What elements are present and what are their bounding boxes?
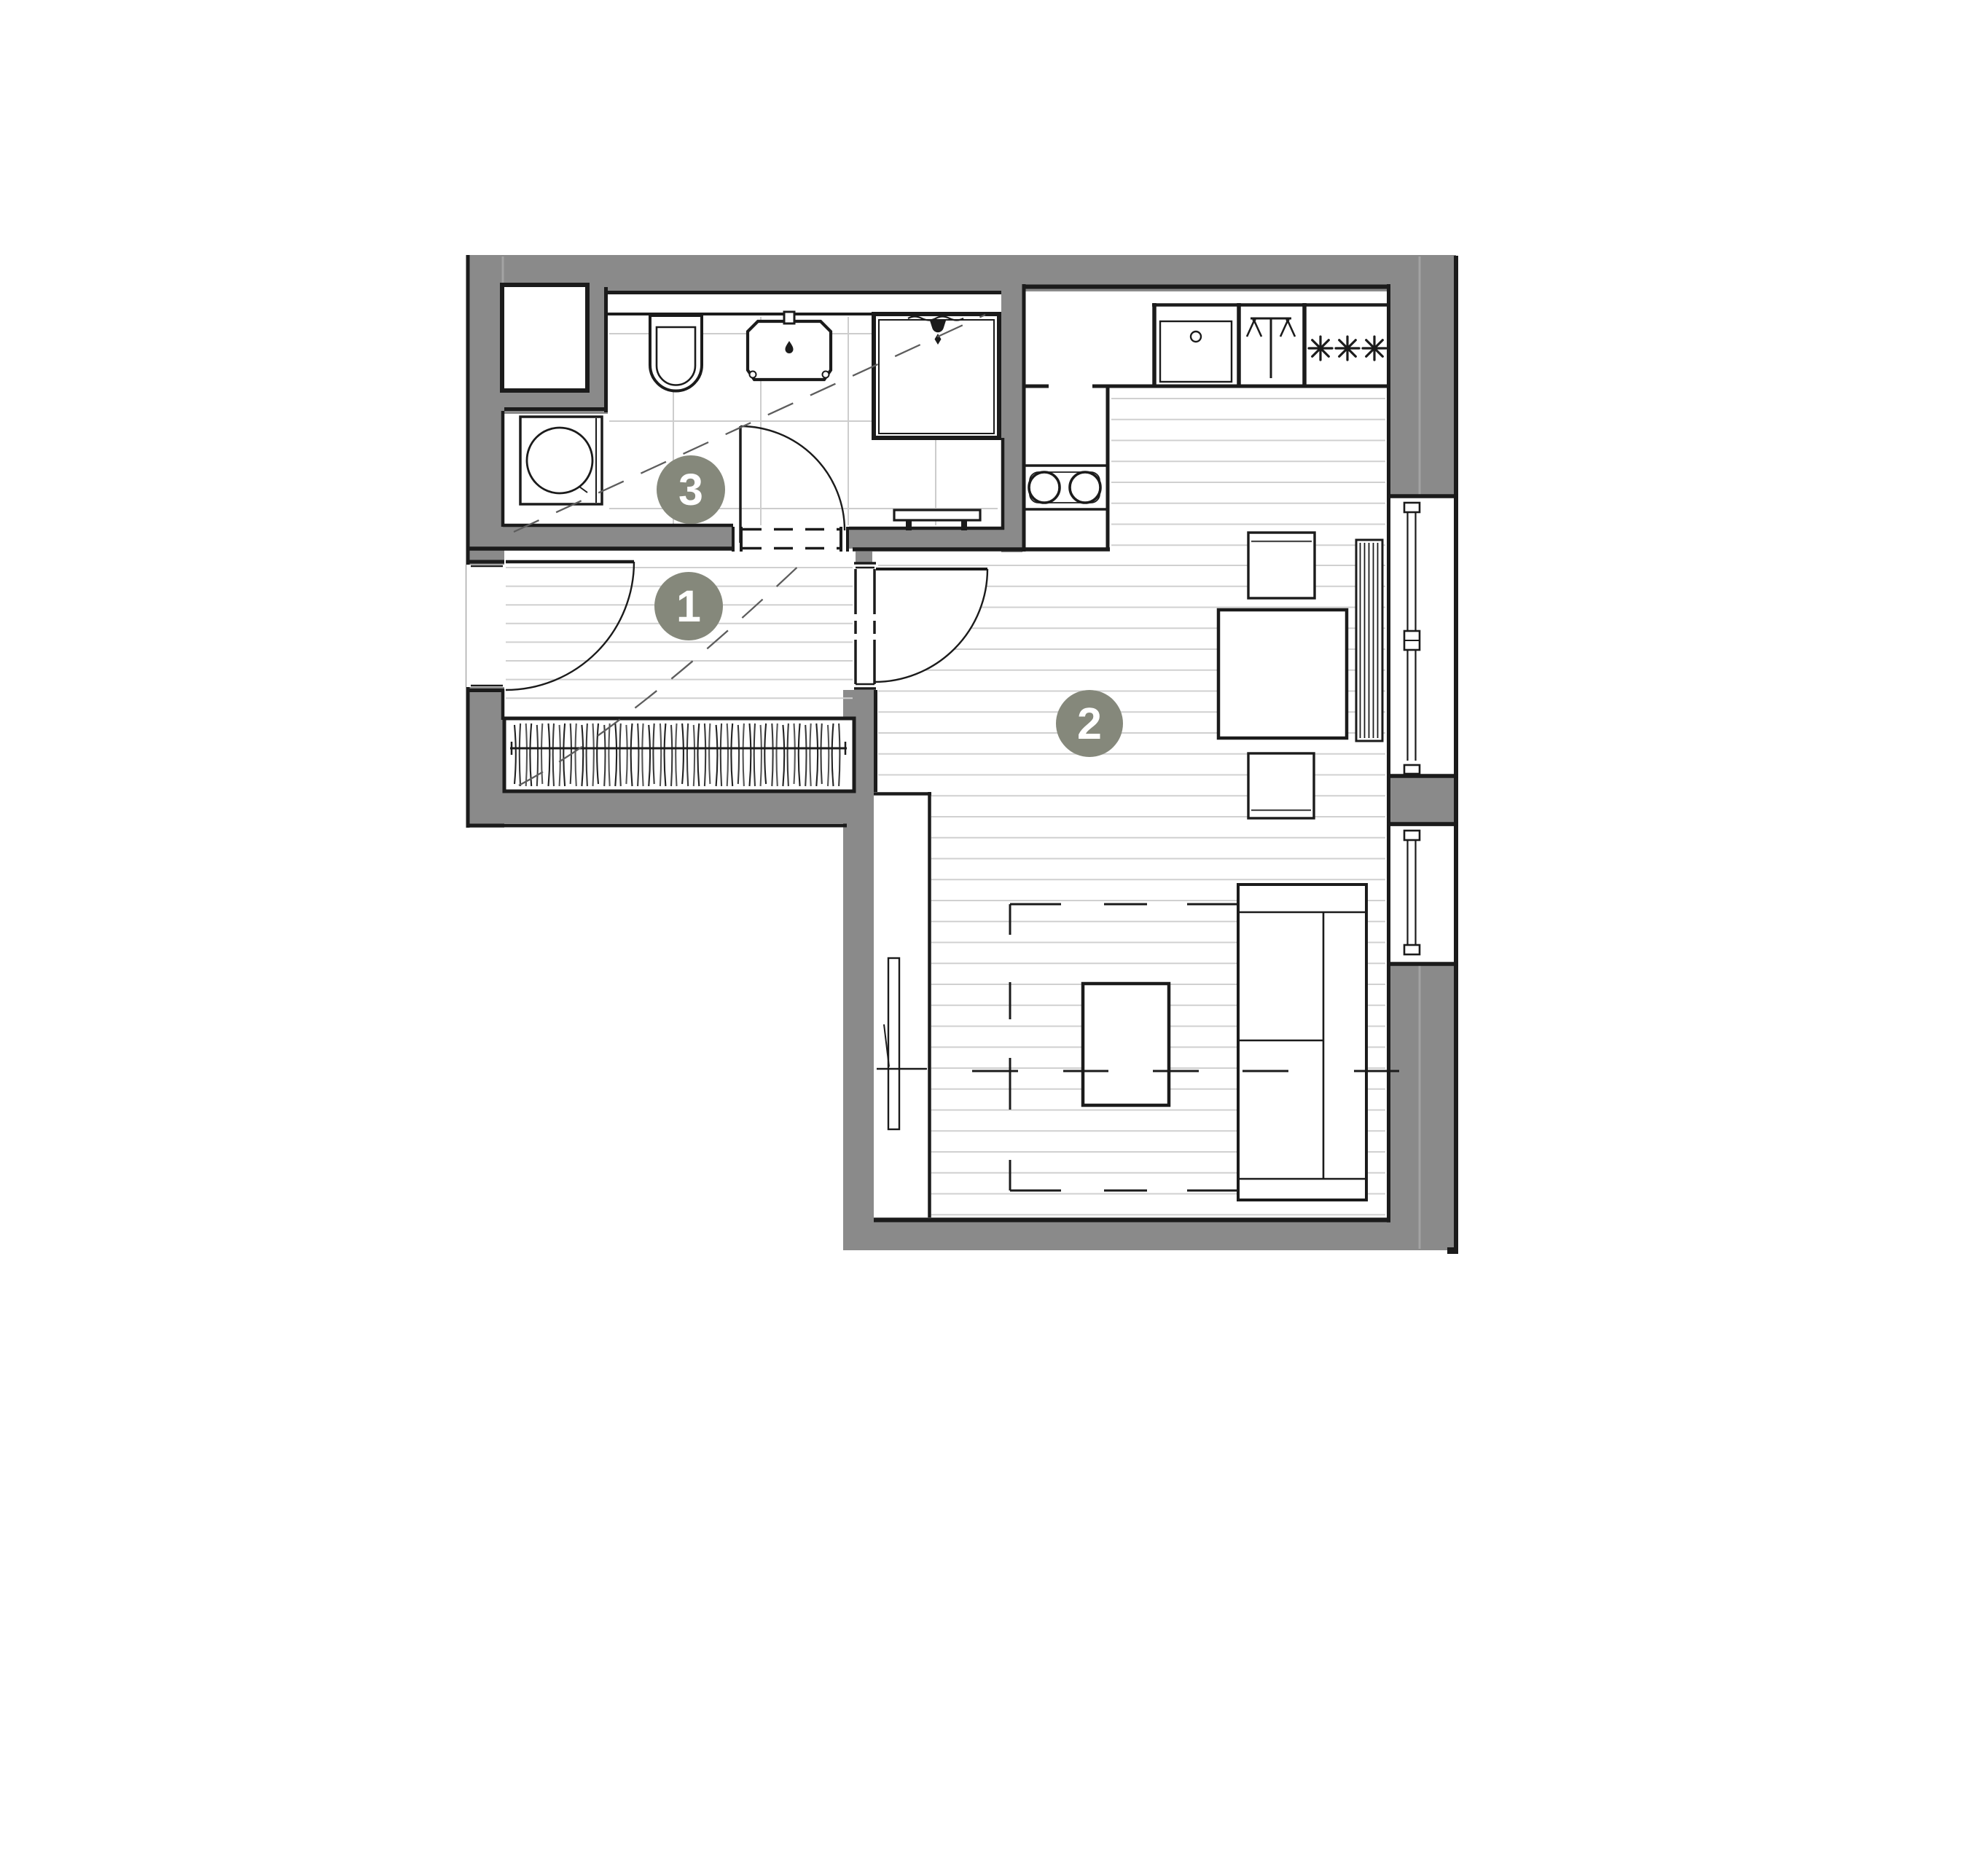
svg-text:2: 2	[1077, 699, 1102, 748]
svg-text:3: 3	[678, 465, 703, 514]
svg-text:1: 1	[676, 581, 701, 631]
